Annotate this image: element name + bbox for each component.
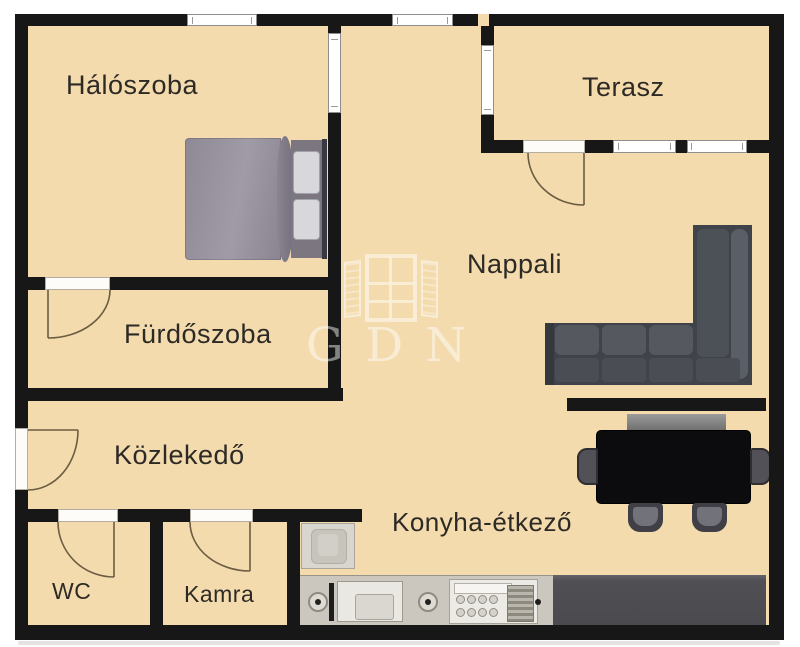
watermark-window-icon (344, 252, 438, 326)
window-icon-terrace-bottom-1 (613, 140, 676, 153)
sofa-back-cushion (649, 325, 693, 355)
bottom-shadow (18, 641, 780, 645)
room-label-konyha-etkezo: Konyha-étkező (392, 507, 572, 538)
wall-right (769, 14, 784, 640)
double-bed-icon (185, 138, 327, 260)
sofa-back-cushion (555, 325, 599, 355)
window-icon-bedroom-top (187, 14, 257, 26)
wall-terrace-bottom-4 (747, 140, 769, 153)
door-opening-terrace (523, 140, 585, 153)
watermark-brand-text: GDN (306, 318, 488, 373)
sofa-seat-cushion (696, 358, 740, 382)
wall-left (15, 14, 28, 640)
dining-chair-icon (692, 503, 727, 532)
window-icon-bedroom-right (328, 33, 341, 113)
window-icon-top-middle (392, 14, 453, 26)
bed-blanket (185, 138, 281, 260)
room-label-kamra: Kamra (184, 581, 254, 608)
kitchen-counter-icon (300, 575, 553, 625)
cooktop-knob (478, 608, 487, 617)
watermark-window-mullion (389, 256, 392, 320)
wall-terrace-bottom-2 (585, 140, 613, 153)
watermark-window-mullion (367, 282, 415, 285)
washing-machine-icon (301, 523, 355, 569)
watermark-shutter-right (421, 260, 438, 318)
sofa-seat-cushion (602, 358, 646, 382)
bed-headboard (322, 139, 327, 259)
room-label-kozlekedo: Közlekedő (114, 440, 245, 471)
counter-knob (535, 599, 541, 605)
cooktop-icon (449, 579, 538, 624)
cooktop-knob (467, 608, 476, 617)
wall-livingroom-kitchen-divider (567, 398, 766, 411)
room-label-furdoszoba: Fürdőszoba (124, 319, 272, 350)
sofa-armrest (545, 323, 554, 385)
sofa-back-cushion (731, 229, 748, 379)
floorplan-canvas: Hálószoba Terasz Nappali Fürdőszoba Közl… (0, 0, 800, 647)
room-label-terasz: Terasz (582, 72, 665, 103)
sofa-back-cushion (602, 325, 646, 355)
hob-burner-icon (418, 592, 438, 612)
sofa-seat-cushion (555, 358, 599, 382)
wall-bathroom-bottom (15, 388, 343, 401)
sofa-chaise-cushion (697, 229, 729, 357)
cooktop-grill (507, 585, 534, 622)
door-opening-bathroom (45, 277, 110, 290)
wall-bottom (15, 625, 784, 640)
door-opening-entrance (15, 428, 28, 490)
bed-pillow (293, 151, 320, 194)
watermark-shutter-left (344, 260, 361, 318)
kitchen-counter-dark-icon (553, 575, 766, 625)
watermark-window-mullion (367, 300, 415, 303)
washing-machine-door (318, 534, 338, 556)
wall-terrace-left-stub-top (481, 26, 494, 45)
dining-table-icon (597, 431, 750, 503)
room-label-nappali: Nappali (467, 249, 562, 280)
window-icon-terrace-bottom-2 (687, 140, 747, 153)
sideboard-bench-icon (627, 414, 726, 432)
bed-pillow (293, 199, 320, 240)
sink-icon (337, 581, 403, 622)
cooktop-panel (454, 583, 512, 594)
dining-chair-icon (577, 448, 598, 485)
corner-sofa-icon (545, 225, 752, 385)
cooktop-knob (456, 595, 465, 604)
cooktop-knob (478, 595, 487, 604)
wall-kamra-right (287, 522, 300, 625)
room-label-wc: WC (52, 578, 91, 605)
door-opening-kamra (190, 509, 253, 522)
counter-divider (329, 583, 334, 621)
wall-terrace-bottom-3 (676, 140, 687, 153)
wall-terrace-bottom-1 (481, 140, 523, 153)
cooktop-knob (456, 608, 465, 617)
room-label-haloszoba: Hálószoba (66, 70, 198, 101)
wall-wc-kamra-divider (150, 522, 163, 625)
sofa-seat-cushion (649, 358, 693, 382)
wall-top-right (489, 14, 784, 26)
wall-bedroom-right-stub (328, 26, 341, 33)
hob-burner-icon (308, 592, 328, 612)
window-icon-terrace-left (481, 45, 494, 115)
cooktop-knob (489, 608, 498, 617)
cooktop-knob (467, 595, 476, 604)
dining-chair-icon (628, 503, 663, 532)
door-opening-wc (58, 509, 118, 522)
dining-chair-icon (750, 448, 771, 485)
cooktop-knob (489, 595, 498, 604)
